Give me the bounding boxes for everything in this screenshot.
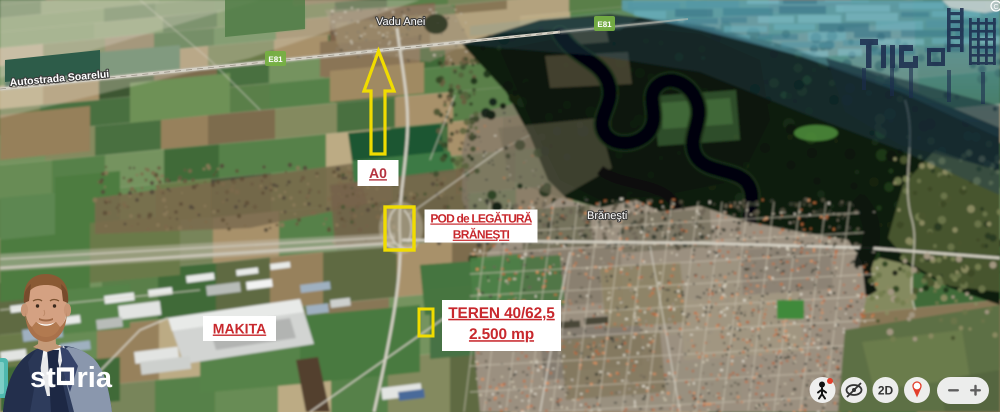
svg-text:Brăneşti: Brăneşti bbox=[587, 210, 627, 222]
svg-text:ria: ria bbox=[77, 362, 113, 394]
svg-text:2.500 mp: 2.500 mp bbox=[469, 326, 534, 343]
svg-text:BRĂNEŞTI: BRĂNEŞTI bbox=[453, 228, 510, 242]
svg-text:Vadu Anei: Vadu Anei bbox=[376, 16, 425, 28]
svg-text:A0: A0 bbox=[369, 165, 387, 181]
svg-text:C: C bbox=[993, 4, 998, 11]
svg-text:E81: E81 bbox=[597, 20, 612, 29]
svg-text:POD de LEGĂTURĂ: POD de LEGĂTURĂ bbox=[430, 212, 532, 226]
svg-text:st: st bbox=[30, 362, 56, 394]
svg-text:E81: E81 bbox=[268, 55, 283, 64]
svg-text:MAKITA: MAKITA bbox=[213, 321, 266, 337]
svg-text:TEREN 40/62,5: TEREN 40/62,5 bbox=[448, 305, 555, 322]
svg-text:2D: 2D bbox=[878, 384, 894, 398]
